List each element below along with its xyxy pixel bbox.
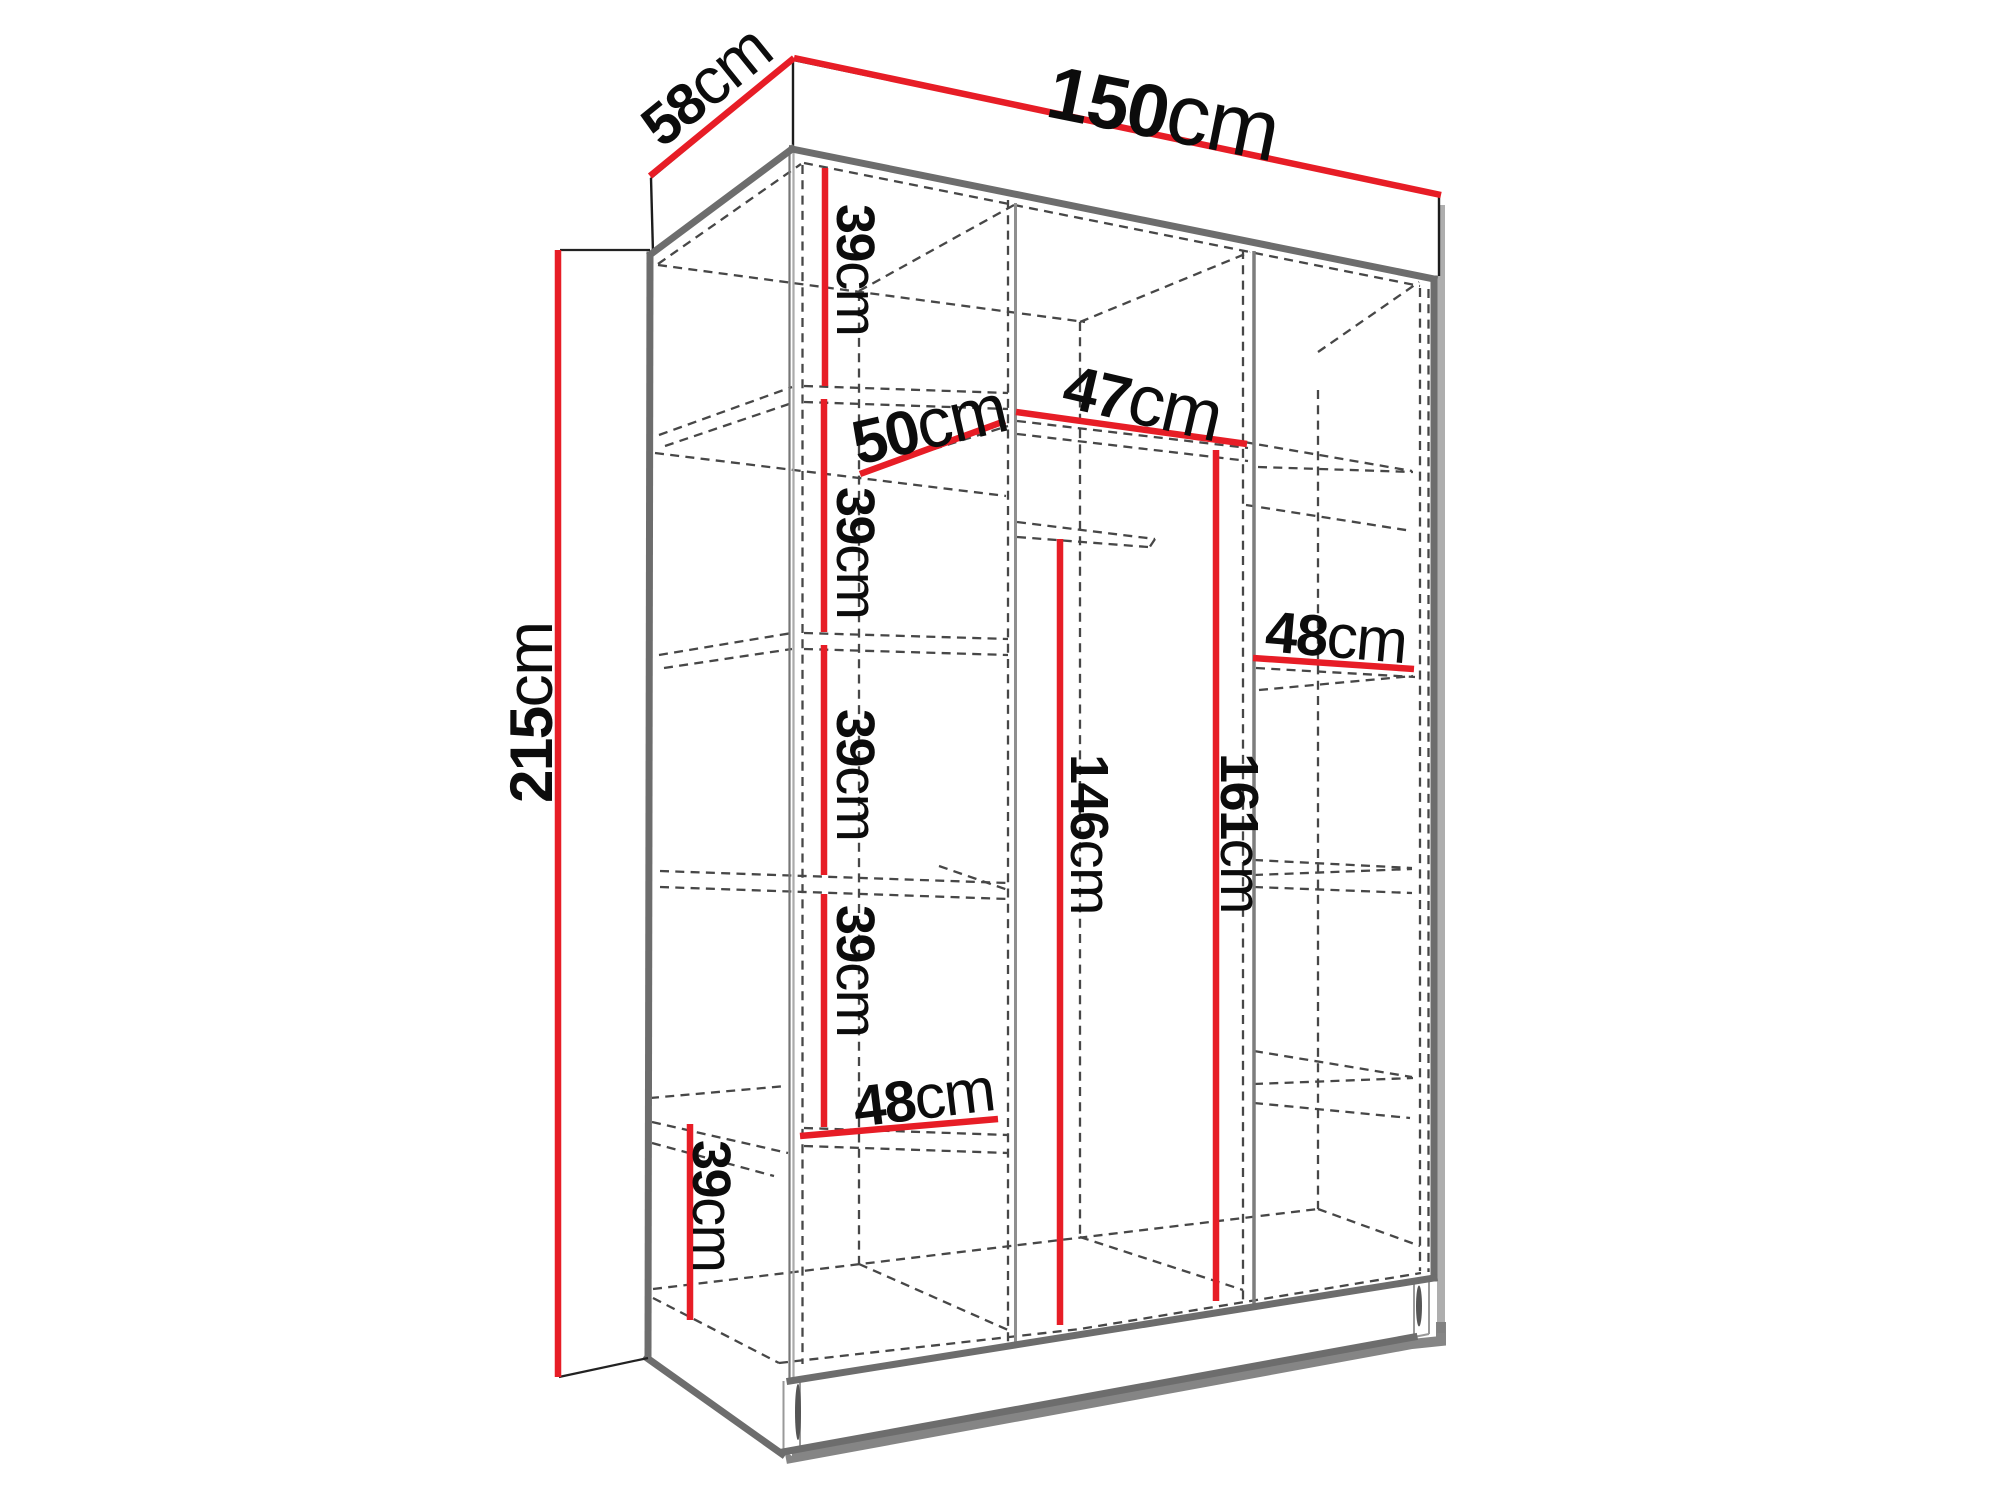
- svg-text:39cm: 39cm: [824, 204, 889, 335]
- svg-text:39cm: 39cm: [824, 487, 889, 618]
- svg-text:39cm: 39cm: [824, 905, 889, 1036]
- svg-text:48cm: 48cm: [1263, 596, 1410, 677]
- svg-text:146cm: 146cm: [1058, 754, 1123, 914]
- svg-text:39cm: 39cm: [824, 709, 889, 840]
- svg-text:39cm: 39cm: [680, 1140, 745, 1271]
- svg-text:215cm: 215cm: [492, 622, 566, 803]
- svg-text:161cm: 161cm: [1208, 753, 1273, 913]
